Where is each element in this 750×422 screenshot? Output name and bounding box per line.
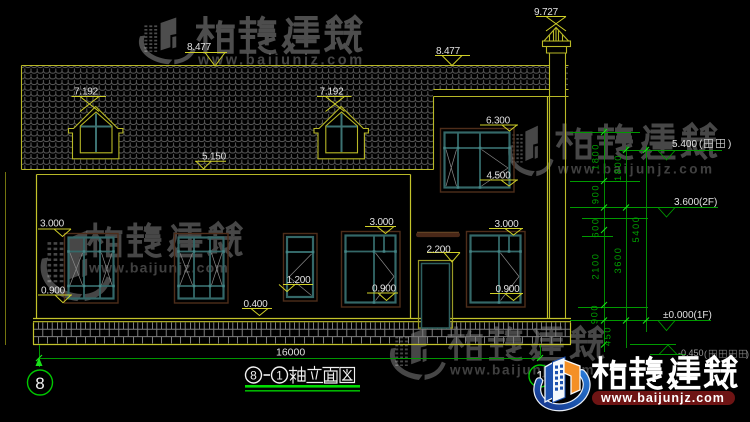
svg-text:0.900: 0.900: [41, 286, 66, 297]
svg-text:9.727: 9.727: [534, 7, 559, 18]
svg-text:0.400: 0.400: [244, 299, 269, 310]
svg-text:900: 900: [591, 184, 601, 204]
svg-text:1800: 1800: [613, 154, 623, 181]
svg-text:3.000: 3.000: [370, 217, 395, 228]
svg-text:3600: 3600: [613, 246, 623, 273]
svg-text:±0.000(1F): ±0.000(1F): [663, 310, 712, 321]
svg-text:www.baijunjz.com: www.baijunjz.com: [600, 391, 725, 405]
svg-text:6.300: 6.300: [486, 116, 511, 127]
svg-text:16000: 16000: [276, 347, 305, 359]
svg-text:2100: 2100: [591, 252, 601, 279]
svg-text:3.000: 3.000: [40, 219, 65, 230]
svg-text:600: 600: [591, 217, 601, 237]
svg-text:8: 8: [250, 369, 257, 383]
svg-text:7.192: 7.192: [74, 87, 99, 98]
svg-text:5.400: 5.400: [672, 139, 697, 150]
svg-text:900: 900: [590, 304, 600, 324]
svg-text:2.200: 2.200: [427, 245, 452, 256]
svg-text:0.900: 0.900: [496, 284, 521, 295]
svg-text:5400: 5400: [631, 215, 641, 242]
svg-text:8.477: 8.477: [436, 46, 461, 57]
svg-text:5.150: 5.150: [202, 152, 227, 163]
svg-text:8: 8: [35, 374, 44, 393]
svg-text:3.600(2F): 3.600(2F): [674, 197, 717, 208]
svg-text:1: 1: [276, 369, 283, 383]
svg-text:(: (: [699, 139, 703, 150]
svg-text:1.200: 1.200: [287, 275, 312, 286]
svg-text:8.477: 8.477: [187, 42, 212, 53]
svg-text:0.900: 0.900: [372, 284, 397, 295]
svg-text:4.500: 4.500: [487, 171, 512, 182]
svg-text:): ): [728, 139, 731, 150]
svg-text:1800: 1800: [591, 143, 601, 170]
svg-text:3.000: 3.000: [495, 219, 520, 230]
svg-text:450: 450: [603, 326, 613, 346]
svg-text:7.192: 7.192: [320, 87, 345, 98]
